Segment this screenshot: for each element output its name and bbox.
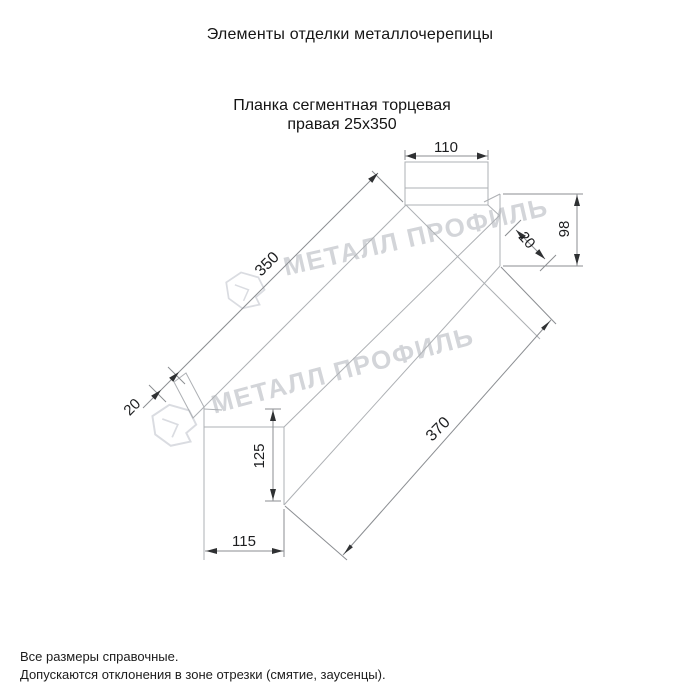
footer-note-2: Допускаются отклонения в зоне отрезки (с…: [20, 666, 386, 684]
dim-370-label: 370: [423, 414, 454, 445]
front-face-lower-edge: [284, 266, 500, 505]
footer-note-1: Все размеры справочные.: [20, 648, 386, 666]
technical-drawing: 110 350 20 370 98 125 115 20: [0, 0, 700, 700]
right-end-top-edge: [484, 194, 500, 202]
lip-front-edge: [204, 409, 222, 410]
part-outline: [174, 162, 540, 560]
dim-125-label: 125: [251, 443, 268, 468]
top-face-upper-edge: [204, 205, 406, 407]
right-end-join-edge: [488, 205, 500, 216]
dimension-arrows: [151, 153, 580, 555]
dimension-lines: [143, 150, 583, 560]
dim-350-label: 350: [252, 249, 283, 280]
middle-fold-edge: [284, 215, 500, 427]
dimension-labels: 110 350 20 370 98 125 115 20: [120, 139, 573, 550]
dim-20-left-label: 20: [120, 395, 144, 419]
page: Элементы отделки металлочерепицы Планка …: [0, 0, 700, 700]
dim-110-label: 110: [434, 139, 458, 156]
dim-98-label: 98: [556, 221, 573, 238]
footer-notes: Все размеры справочные. Допускаются откл…: [20, 648, 386, 684]
right-end-cut-edge: [406, 205, 540, 339]
end-section-rect: [405, 162, 488, 205]
left-end-lip: [174, 373, 204, 418]
dim-115-label: 115: [232, 533, 256, 550]
